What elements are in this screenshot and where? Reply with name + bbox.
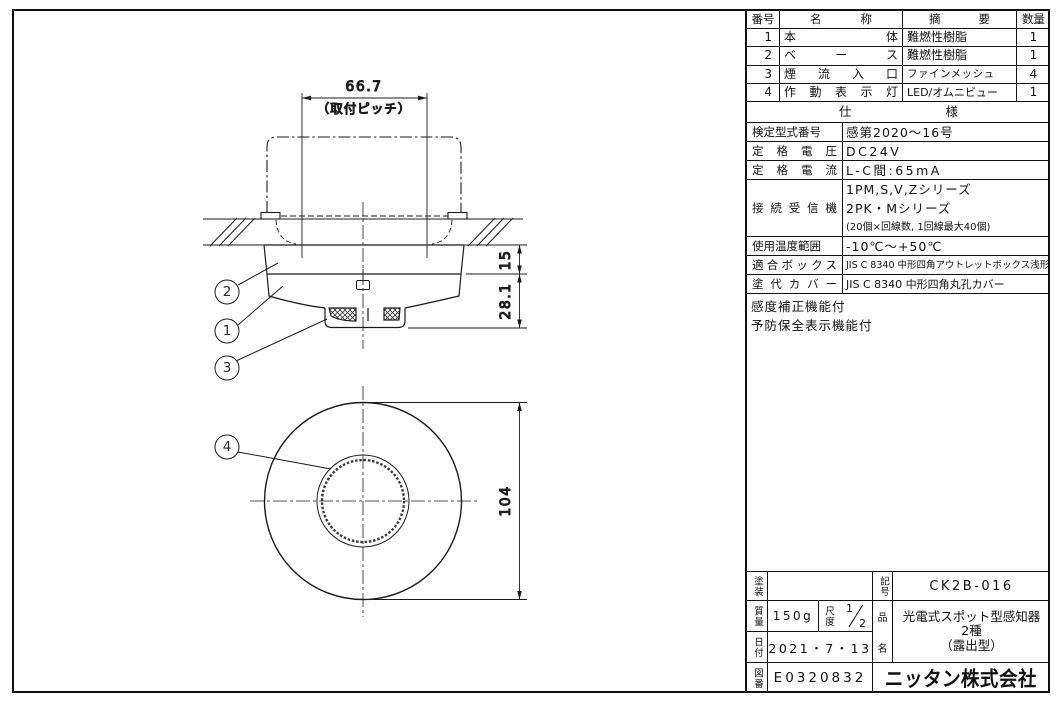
balloon-1-number: 1 [223, 323, 232, 339]
spec-value-line: 2PK・Mシリーズ [846, 199, 1047, 218]
part-qty: 1 [1017, 84, 1050, 102]
ceiling [203, 218, 527, 246]
balloon-3-number: 3 [223, 360, 232, 376]
part-desc: ファインメッシュ [903, 66, 1017, 84]
date-label: 日付 [747, 632, 768, 662]
dim-pitch-value: 66.7 [345, 79, 382, 95]
part-no: 1 [747, 29, 780, 47]
spec-value: 感第2020〜16号 [843, 123, 1050, 142]
parts-header-qty: 数量 [1017, 11, 1050, 29]
part-qty: 1 [1017, 29, 1050, 47]
spec-value: DC24V [843, 142, 1050, 161]
spec-label: 使用温度範囲 [747, 237, 843, 256]
part-name: 本体 [780, 29, 903, 47]
side-view: 2 1 3 66.7 （取付ピッチ） 15 28.1 [203, 79, 527, 380]
detector-drawing: 2 1 3 66.7 （取付ピッチ） 15 28.1 [0, 0, 745, 702]
part-no: 4 [747, 84, 780, 102]
balloon-2: 2 [215, 263, 278, 304]
product-name-line2: 2種 [961, 624, 981, 639]
part-name: 煙流入口 [780, 66, 903, 84]
product-name-line1: 光電式スポット型感知器 [903, 610, 1041, 625]
part-no: 2 [747, 47, 780, 65]
dim-diameter-value: 104 [498, 485, 514, 516]
part-qty: 1 [1017, 47, 1050, 65]
part-name: 作動表示灯 [780, 84, 903, 102]
drawing-number-label: 図番 [747, 663, 768, 693]
spec-value: JIS C 8340 中形四角丸孔カバー [843, 275, 1050, 294]
spec-value: JIS C 8340 中形四角アウトレットボックス浅形 [843, 256, 1050, 275]
date-value: 2021・7・13 [768, 632, 873, 663]
part-desc: 難燃性樹脂 [903, 29, 1017, 47]
spec-value-line: 1PM,S,V,Zシリーズ [846, 180, 1047, 199]
product-label-top: 品 [873, 601, 892, 632]
spec-value: L-C間:65mA [843, 161, 1050, 180]
title-block: 塗装 記号 CK2B-016 質量 150g 尺度 1 2 品 名 光電式スポッ… [747, 571, 1050, 692]
dim-total-height-value: 28.1 [498, 282, 514, 319]
paint-label: 塗装 [747, 572, 768, 600]
company-logo: ニッタン株式会社 [885, 663, 1038, 692]
symbol-value: CK2B-016 [893, 572, 1050, 601]
paint-value [768, 572, 873, 601]
dim-pitch-note: （取付ピッチ） [317, 101, 412, 116]
spec-label: 定格電流 [747, 161, 843, 180]
outlet-box [261, 137, 467, 219]
dim-base-height-value: 15 [498, 250, 514, 271]
detector-profile [264, 245, 464, 328]
part-no: 3 [747, 66, 780, 84]
spec-value: -10℃〜+50℃ [843, 237, 1050, 256]
scale-value: 1 2 [841, 601, 871, 631]
balloon-2-number: 2 [223, 284, 232, 300]
dim-pitch [302, 93, 427, 258]
balloon-4-number: 4 [223, 439, 232, 455]
mass-value: 150g [768, 601, 819, 632]
scale-denominator: 2 [859, 617, 866, 630]
parts-header-no: 番号 [747, 11, 780, 29]
spec-label: 検定型式番号 [747, 123, 843, 142]
spec-label: 塗代カバー [747, 275, 843, 294]
scale-numerator: 1 [846, 602, 853, 615]
parts-table: 番号 名称 摘要 数量 1 本体 難燃性樹脂 1 2 ベース 難燃性樹脂 1 3… [747, 11, 1050, 102]
spec-value-line: (20個×回線数, 1回線最大40個) [846, 218, 1047, 236]
balloon-4: 4 [215, 435, 331, 469]
spec-table: 検定型式番号 感第2020〜16号 定格電圧 DC24V 定格電流 L-C間:6… [747, 123, 1050, 294]
bottom-view: 4 104 [215, 386, 527, 617]
part-desc: LED/オムニビュー [903, 84, 1017, 102]
part-name: ベース [780, 47, 903, 65]
spec-section-title: 仕様 [747, 102, 1050, 123]
mass-label: 質量 [747, 601, 768, 631]
spec-notes: 感度補正機能付 予防保全表示機能付 [751, 297, 873, 335]
spec-note: 予防保全表示機能付 [751, 316, 873, 335]
parts-header-desc: 摘要 [903, 11, 1017, 29]
part-desc: 難燃性樹脂 [903, 47, 1017, 65]
part-qty: 4 [1017, 66, 1050, 84]
spec-label: 定格電圧 [747, 142, 843, 161]
symbol-label: 記号 [873, 572, 893, 600]
drawing-number-value: E0320832 [768, 663, 873, 693]
product-label-bottom: 名 [873, 632, 892, 663]
parts-header-name: 名称 [780, 11, 903, 29]
spec-label: 適合ボックス [747, 256, 843, 275]
drawing-sheet: 2 1 3 66.7 （取付ピッチ） 15 28.1 [0, 0, 1062, 702]
spec-label: 接続受信機 [747, 180, 843, 236]
scale-label: 尺度 [821, 601, 836, 631]
product-name-line3: （露出型） [940, 639, 1003, 654]
spec-note: 感度補正機能付 [751, 297, 873, 316]
